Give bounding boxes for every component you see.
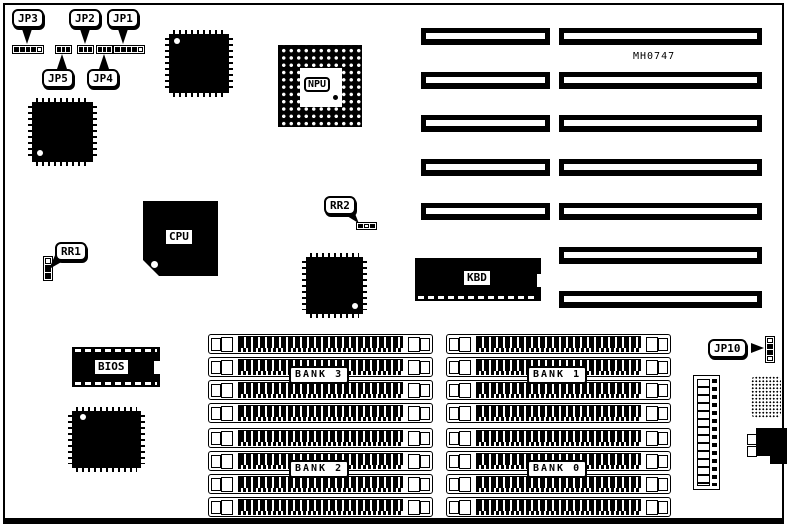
qfp-chip-3 (302, 253, 367, 318)
jp1-arrow-icon (118, 29, 128, 44)
kbd-label: KBD (463, 270, 491, 286)
expansion-slot-long-segment (559, 203, 762, 220)
simm-latch-icon (408, 406, 420, 421)
expansion-slot-long-segment (559, 72, 762, 89)
expansion-slot-short-segment (421, 203, 550, 220)
simm-latch-icon (221, 454, 233, 469)
simm-latch-icon (646, 431, 658, 446)
simm-latch-icon (658, 432, 668, 445)
jp3-callout: JP3 (12, 9, 44, 28)
simm-latch-icon (408, 360, 420, 375)
jp4-callout: JP4 (87, 69, 119, 88)
simm-latch-icon (211, 361, 221, 374)
simm-contact-strip (238, 442, 403, 446)
simm-latch-icon (221, 406, 233, 421)
jp2-callout: JP2 (69, 9, 101, 28)
simm-latch-icon (408, 431, 420, 446)
simm-latch-icon (211, 455, 221, 468)
simm-latch-icon (420, 501, 430, 514)
jp3-jumper-block (12, 45, 44, 54)
simm-socket (446, 334, 671, 354)
simm-latch-icon (449, 407, 459, 420)
jp2-jumper-block (77, 45, 94, 54)
simm-latch-icon (211, 338, 221, 351)
simm-latch-icon (211, 501, 221, 514)
simm-latch-icon (646, 337, 658, 352)
simm-latch-icon (420, 407, 430, 420)
simm-contact-strip (238, 394, 403, 398)
simm-socket (446, 497, 671, 517)
simm-latch-icon (221, 477, 233, 492)
simm-latch-icon (646, 500, 658, 515)
simm-latch-icon (449, 501, 459, 514)
simm-latch-icon (408, 383, 420, 398)
simm-latch-icon (420, 338, 430, 351)
simm-latch-icon (459, 360, 471, 375)
simm-contact-strip (238, 488, 403, 492)
simm-latch-icon (459, 406, 471, 421)
motherboard-diagram: JP3 JP2 JP1 JP5 JP4 NPU (0, 0, 791, 527)
jp4-jumper-block (96, 45, 113, 54)
cpu-label: CPU (166, 230, 192, 244)
simm-latch-icon (658, 455, 668, 468)
simm-latch-icon (420, 432, 430, 445)
jp5-arrow-icon (57, 54, 67, 69)
simm-contact-strip (238, 511, 403, 515)
simm-latch-icon (211, 432, 221, 445)
speaker-grille-component (751, 376, 781, 418)
simm-latch-icon (211, 478, 221, 491)
simm-latch-icon (420, 478, 430, 491)
simm-latch-icon (459, 337, 471, 352)
simm-latch-icon (221, 360, 233, 375)
din-connector-tab-1 (747, 434, 757, 445)
jp5-callout: JP5 (42, 69, 74, 88)
cpu-pin1-dot-icon (151, 261, 158, 268)
simm-socket (208, 334, 433, 354)
qfp-chip-4 (68, 407, 145, 472)
simm-latch-icon (646, 383, 658, 398)
simm-latch-icon (449, 338, 459, 351)
rr2-callout: RR2 (324, 196, 356, 215)
npu-label: NPU (304, 77, 330, 92)
simm-contact-strip (238, 417, 403, 421)
jp3-arrow-icon (22, 29, 32, 44)
simm-latch-icon (658, 407, 668, 420)
jp10-arrow-icon (751, 343, 764, 353)
simm-socket (446, 428, 671, 448)
simm-latch-icon (459, 500, 471, 515)
jp10-jumper-block (765, 336, 775, 363)
simm-latch-icon (658, 384, 668, 397)
din-connector-tab-2 (747, 446, 757, 457)
simm-contact-strip (476, 511, 641, 515)
simm-latch-icon (221, 337, 233, 352)
simm-socket (208, 403, 433, 423)
simm-latch-icon (459, 454, 471, 469)
simm-contact-strip (476, 488, 641, 492)
expansion-slot-short-segment (421, 28, 550, 45)
jp2-arrow-icon (80, 29, 90, 44)
simm-socket (446, 403, 671, 423)
simm-latch-icon (646, 360, 658, 375)
simm-socket (208, 497, 433, 517)
simm-latch-icon (658, 501, 668, 514)
simm-latch-icon (420, 361, 430, 374)
jp1-callout: JP1 (107, 9, 139, 28)
simm-latch-icon (646, 477, 658, 492)
qfp-chip-1 (165, 30, 233, 97)
simm-latch-icon (221, 431, 233, 446)
simm-latch-icon (449, 432, 459, 445)
dual-row-header-connector (693, 375, 720, 490)
qfp-chip-2 (28, 98, 97, 166)
expansion-slot-long-segment (559, 115, 762, 132)
bios-label: BIOS (94, 359, 129, 375)
bios-chip: BIOS (72, 347, 160, 387)
expansion-slot-long-segment (559, 159, 762, 176)
bank2-label: BANK 2 (289, 460, 349, 478)
npu-socket: NPU (278, 45, 362, 127)
simm-latch-icon (221, 500, 233, 515)
keyboard-din-connector-step (770, 452, 787, 464)
simm-latch-icon (658, 361, 668, 374)
simm-latch-icon (211, 407, 221, 420)
simm-latch-icon (408, 337, 420, 352)
simm-latch-icon (658, 478, 668, 491)
simm-latch-icon (449, 361, 459, 374)
kbd-controller-chip: KBD (415, 258, 541, 301)
bank0-label: BANK 0 (527, 460, 587, 478)
simm-latch-icon (459, 477, 471, 492)
simm-socket (208, 428, 433, 448)
simm-latch-icon (459, 383, 471, 398)
expansion-slot-long-segment (559, 247, 762, 264)
expansion-slot-short-segment (421, 72, 550, 89)
simm-latch-icon (449, 455, 459, 468)
simm-contact-strip (476, 442, 641, 446)
simm-contact-strip (238, 348, 403, 352)
simm-latch-icon (408, 477, 420, 492)
npu-pin1-dot-icon (333, 95, 338, 100)
simm-latch-icon (646, 454, 658, 469)
simm-latch-icon (658, 338, 668, 351)
simm-contact-strip (476, 348, 641, 352)
bank1-label: BANK 1 (527, 366, 587, 384)
simm-latch-icon (459, 431, 471, 446)
simm-latch-icon (449, 478, 459, 491)
jp1-jumper-block (113, 45, 145, 54)
simm-latch-icon (408, 500, 420, 515)
expansion-slot-long-segment (559, 291, 762, 308)
simm-latch-icon (211, 384, 221, 397)
npu-socket-window: NPU (300, 68, 342, 107)
jp4-arrow-icon (99, 54, 109, 69)
simm-latch-icon (221, 383, 233, 398)
simm-latch-icon (408, 454, 420, 469)
jp10-callout: JP10 (708, 339, 747, 358)
simm-latch-icon (420, 384, 430, 397)
bank3-label: BANK 3 (289, 366, 349, 384)
simm-latch-icon (449, 384, 459, 397)
expansion-slot-short-segment (421, 115, 550, 132)
expansion-slot-short-segment (421, 159, 550, 176)
rr1-callout: RR1 (55, 242, 87, 261)
rr2-resistor-pack (356, 222, 377, 230)
simm-contact-strip (476, 417, 641, 421)
expansion-slot-long-segment (559, 28, 762, 45)
simm-contact-strip (476, 394, 641, 398)
simm-latch-icon (420, 455, 430, 468)
board-model-text: MH0747 (633, 51, 675, 62)
simm-latch-icon (646, 406, 658, 421)
jp5-jumper-block (55, 45, 72, 54)
